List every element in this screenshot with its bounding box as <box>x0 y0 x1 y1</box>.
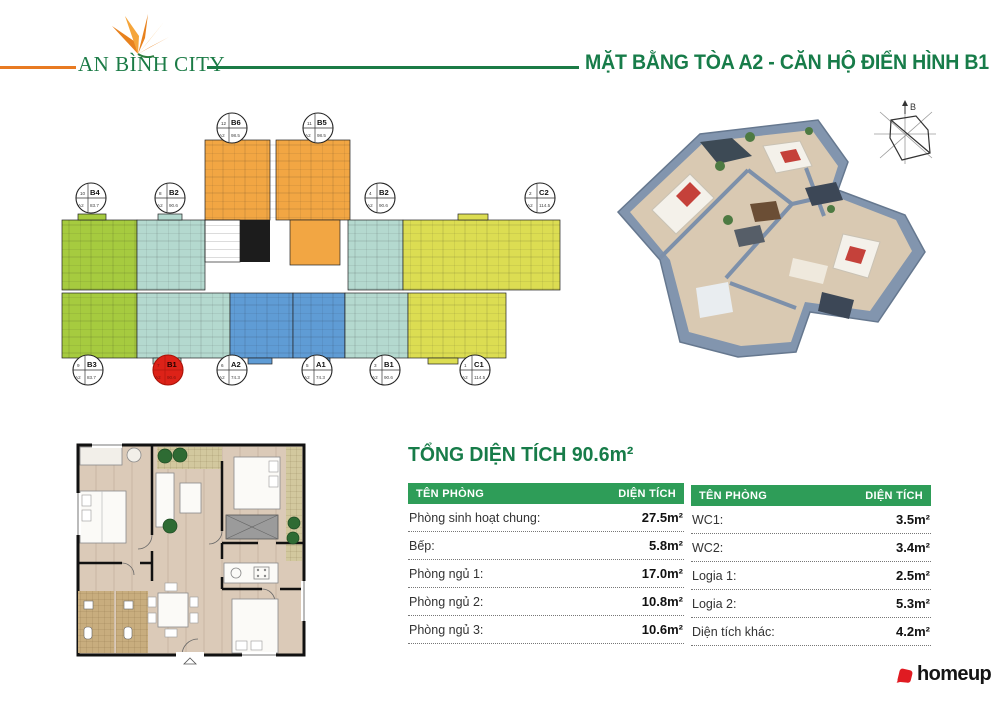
total-area-title: TỔNG DIỆN TÍCH 90.6m² <box>408 444 633 467</box>
entrance <box>176 652 204 658</box>
col-area-header: DIỆN TÍCH <box>618 488 676 500</box>
unit-circle-c2-2: 2C2A2114.5 <box>525 183 555 213</box>
unit-circle-b1-7: 7B1A290.6 <box>153 355 183 385</box>
svg-text:10: 10 <box>80 191 86 196</box>
svg-text:A2: A2 <box>219 375 225 380</box>
unit-circle-b1-3: 3B1A290.6 <box>370 355 400 385</box>
col-area-header: DIỆN TÍCH <box>865 490 923 502</box>
svg-text:4: 4 <box>369 191 372 196</box>
area-row: Phòng ngủ 1:17.0m² <box>408 560 684 588</box>
svg-text:114.5: 114.5 <box>474 375 486 380</box>
svg-text:A2: A2 <box>527 203 533 208</box>
svg-text:1: 1 <box>464 363 467 368</box>
room-area-value: 4.2m² <box>896 624 930 639</box>
unit-circle-a1-5: 5A1A274.3 <box>302 355 332 385</box>
svg-text:83.7: 83.7 <box>87 375 96 380</box>
page-title: MẶT BẰNG TÒA A2 - CĂN HỘ ĐIỂN HÌNH B1 <box>585 51 989 75</box>
svg-text:B3: B3 <box>87 360 97 369</box>
svg-text:A2: A2 <box>304 375 310 380</box>
svg-text:C2: C2 <box>539 188 549 197</box>
room-area-value: 10.8m² <box>642 594 683 609</box>
area-row: WC1:3.5m² <box>691 506 931 534</box>
table-rows: Phòng sinh hoạt chung:27.5m²Bếp:5.8m²Phò… <box>408 504 684 644</box>
bed-left <box>80 491 126 543</box>
svg-text:12: 12 <box>221 121 227 126</box>
homeup-logo: homeup <box>896 663 991 686</box>
header-orange-rule <box>0 66 76 69</box>
svg-text:98.5: 98.5 <box>231 133 240 138</box>
svg-text:A2: A2 <box>231 360 241 369</box>
svg-text:B2: B2 <box>169 188 179 197</box>
svg-text:A2: A2 <box>219 133 225 138</box>
svg-text:11: 11 <box>307 121 312 126</box>
wardrobe <box>80 447 122 465</box>
room-area-value: 2.5m² <box>896 568 930 583</box>
svg-text:B1: B1 <box>384 360 394 369</box>
svg-text:90.6: 90.6 <box>167 375 176 380</box>
area-table-left: TÊN PHÒNG DIỆN TÍCH Phòng sinh hoạt chun… <box>408 483 684 644</box>
brand-name: AN BÌNH CITY <box>78 52 225 77</box>
bathrooms <box>78 591 148 653</box>
svg-text:A2: A2 <box>372 375 378 380</box>
room-label: Phòng sinh hoạt chung: <box>409 511 540 525</box>
svg-text:9: 9 <box>77 363 80 368</box>
svg-text:A1: A1 <box>316 360 326 369</box>
svg-text:7: 7 <box>157 363 160 368</box>
room-area-value: 17.0m² <box>642 566 683 581</box>
room-label: Logia 1: <box>692 569 736 583</box>
svg-text:A2: A2 <box>78 203 84 208</box>
area-row: Bếp:5.8m² <box>408 532 684 560</box>
svg-text:B6: B6 <box>231 118 241 127</box>
col-room-header: TÊN PHÒNG <box>416 488 484 500</box>
unit-circle-b2-8: 8B2A290.6 <box>155 183 185 213</box>
room-label: WC2: <box>692 541 723 555</box>
svg-text:C1: C1 <box>474 360 484 369</box>
unit-circle-a2-6: 6A2A274.3 <box>217 355 247 385</box>
room-area-value: 3.5m² <box>896 512 930 527</box>
svg-text:74.3: 74.3 <box>231 375 240 380</box>
table-header: TÊN PHÒNG DIỆN TÍCH <box>691 485 931 506</box>
compass-icon: B <box>866 98 944 168</box>
homeup-house-icon <box>896 665 914 684</box>
unit-circle-b5-11: 11B5A298.5 <box>303 113 333 143</box>
svg-text:A2: A2 <box>155 375 161 380</box>
col-room-header: TÊN PHÒNG <box>699 490 767 502</box>
side-table <box>127 448 141 462</box>
svg-text:8: 8 <box>159 191 162 196</box>
room-label: Phòng ngủ 2: <box>409 595 483 609</box>
bed-top-right <box>234 457 280 509</box>
tower-floor-schematic: 12B6A298.511B5A298.510B4A283.78B2A290.64… <box>58 105 568 405</box>
area-row: WC2:3.4m² <box>691 534 931 562</box>
svg-text:98.5: 98.5 <box>317 133 326 138</box>
svg-text:90.6: 90.6 <box>379 203 388 208</box>
header-green-rule <box>207 66 579 69</box>
svg-text:83.7: 83.7 <box>90 203 99 208</box>
svg-text:6: 6 <box>221 363 224 368</box>
apartment-floorplan-2d <box>62 431 312 671</box>
svg-text:90.6: 90.6 <box>169 203 178 208</box>
table-rows: WC1:3.5m²WC2:3.4m²Logia 1:2.5m²Logia 2:5… <box>691 506 931 646</box>
svg-text:5: 5 <box>306 363 309 368</box>
bathroom <box>696 282 733 318</box>
dining-table <box>750 201 781 222</box>
room-label: Diện tích khác: <box>692 625 775 639</box>
schematic-units <box>62 140 560 364</box>
room-label: Bếp: <box>409 539 435 553</box>
compass-north-label: B <box>910 102 916 112</box>
unit-circle-b4-10: 10B4A283.7 <box>76 183 106 213</box>
area-row: Phòng ngủ 2:10.8m² <box>408 588 684 616</box>
room-area-value: 27.5m² <box>642 510 683 525</box>
unit-circle-b6-12: 12B6A298.5 <box>217 113 247 143</box>
area-row: Logia 2:5.3m² <box>691 590 931 618</box>
svg-text:B2: B2 <box>379 188 389 197</box>
svg-text:A2: A2 <box>75 375 81 380</box>
svg-text:A2: A2 <box>462 375 468 380</box>
svg-text:A2: A2 <box>305 133 311 138</box>
brochure-page: AN BÌNH CITY MẶT BẰNG TÒA A2 - CĂN HỘ ĐI… <box>0 0 1000 706</box>
svg-text:2: 2 <box>529 191 532 196</box>
area-row: Diện tích khác:4.2m² <box>691 618 931 646</box>
bed-bottom-right <box>232 599 278 653</box>
area-row: Logia 1:2.5m² <box>691 562 931 590</box>
room-label: Phòng ngủ 1: <box>409 567 483 581</box>
unit-circle-b3-9: 9B3A283.7 <box>73 355 103 385</box>
area-row: Phòng ngủ 3:10.6m² <box>408 616 684 644</box>
room-area-value: 10.6m² <box>642 622 683 637</box>
room-label: Phòng ngủ 3: <box>409 623 483 637</box>
svg-text:90.6: 90.6 <box>384 375 393 380</box>
table-header: TÊN PHÒNG DIỆN TÍCH <box>408 483 684 504</box>
svg-text:A2: A2 <box>367 203 373 208</box>
svg-text:114.5: 114.5 <box>539 203 551 208</box>
unit-circle-c1-1: 1C1A2114.5 <box>460 355 490 385</box>
svg-text:3: 3 <box>374 363 377 368</box>
room-area-value: 3.4m² <box>896 540 930 555</box>
homeup-wordmark: homeup <box>917 663 991 686</box>
unit-circle-b2-4: 4B2A290.6 <box>365 183 395 213</box>
svg-text:B1: B1 <box>167 360 177 369</box>
area-row: Phòng sinh hoạt chung:27.5m² <box>408 504 684 532</box>
room-label: Logia 2: <box>692 597 736 611</box>
room-label: WC1: <box>692 513 723 527</box>
room-area-value: 5.8m² <box>649 538 683 553</box>
svg-text:74.3: 74.3 <box>316 375 325 380</box>
kitchen <box>224 563 278 583</box>
area-table-right: TÊN PHÒNG DIỆN TÍCH WC1:3.5m²WC2:3.4m²Lo… <box>691 485 931 646</box>
coffee-table <box>180 483 201 513</box>
svg-text:A2: A2 <box>157 203 163 208</box>
svg-text:B4: B4 <box>90 188 100 197</box>
room-area-value: 5.3m² <box>896 596 930 611</box>
svg-text:B5: B5 <box>317 118 327 127</box>
